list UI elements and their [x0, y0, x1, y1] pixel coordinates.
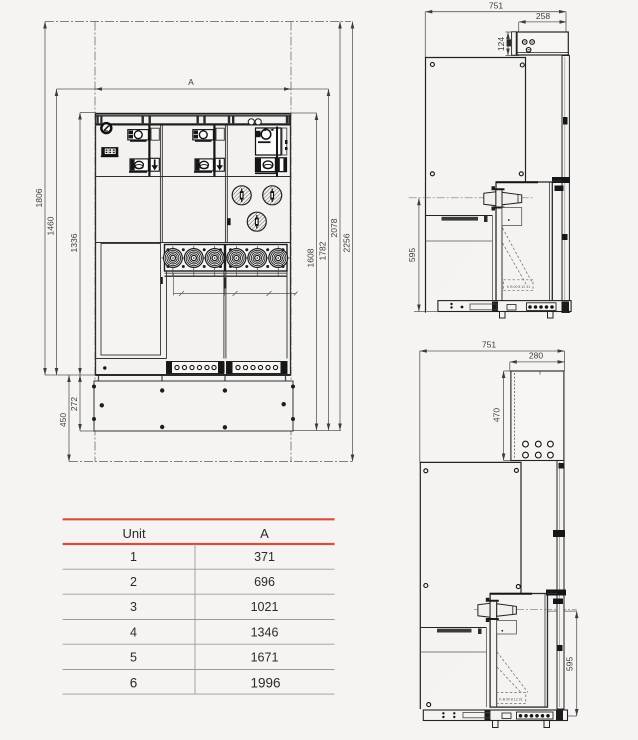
- svg-text:2256: 2256: [342, 233, 352, 252]
- svg-text:280: 280: [529, 351, 543, 361]
- svg-text:A: A: [188, 77, 194, 87]
- svg-text:751: 751: [482, 340, 496, 350]
- svg-text:Unit: Unit: [122, 526, 146, 541]
- svg-text:371: 371: [254, 550, 275, 564]
- svg-text:124: 124: [496, 37, 506, 51]
- svg-text:A: A: [260, 526, 269, 541]
- svg-text:1: 1: [130, 550, 137, 564]
- svg-text:6: 6: [130, 676, 138, 691]
- svg-text:2: 2: [130, 575, 137, 589]
- svg-text:258: 258: [536, 11, 550, 21]
- svg-text:470: 470: [492, 408, 502, 422]
- svg-text:595: 595: [407, 248, 417, 262]
- svg-text:K B 00 8 12 31: K B 00 8 12 31: [507, 285, 530, 289]
- svg-text:2078: 2078: [329, 218, 339, 237]
- svg-text:751: 751: [489, 1, 503, 11]
- svg-text:272: 272: [69, 397, 79, 411]
- svg-text:1336: 1336: [69, 233, 79, 252]
- svg-text:1996: 1996: [250, 676, 280, 691]
- svg-text:5: 5: [130, 651, 137, 665]
- svg-text:1021: 1021: [251, 600, 279, 614]
- svg-text:1608: 1608: [306, 248, 316, 267]
- svg-text:450: 450: [58, 413, 68, 427]
- svg-text:1346: 1346: [251, 626, 279, 640]
- svg-text:696: 696: [254, 575, 275, 589]
- svg-text:1806: 1806: [34, 188, 44, 207]
- svg-text:1671: 1671: [251, 651, 279, 665]
- svg-text:K B 00 8 12 31: K B 00 8 12 31: [499, 698, 522, 702]
- svg-text:1460: 1460: [46, 216, 56, 235]
- svg-text:595: 595: [565, 657, 575, 671]
- svg-text:1782: 1782: [318, 241, 328, 260]
- svg-text:4: 4: [130, 626, 137, 640]
- svg-text:3: 3: [130, 600, 137, 614]
